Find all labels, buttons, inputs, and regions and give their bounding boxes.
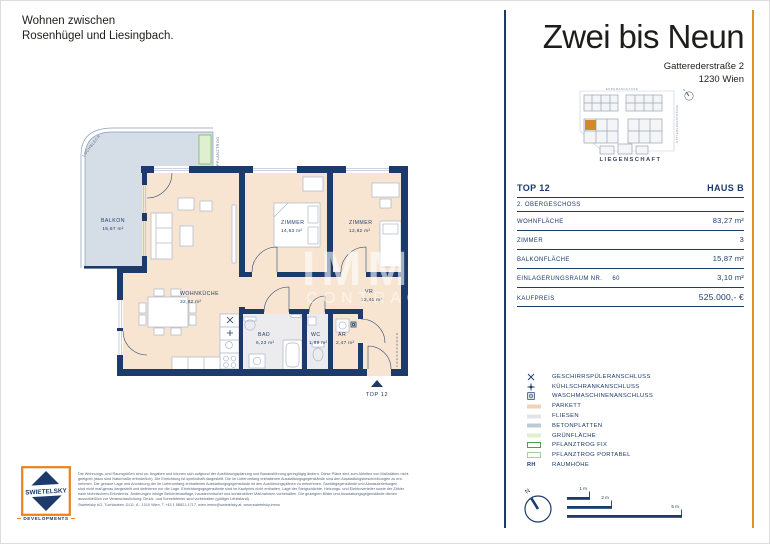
room-label: AR <box>338 332 346 338</box>
pflanztrog-label: PFLANZTROG <box>216 136 220 166</box>
washing-machine-icon <box>249 354 265 368</box>
site-plan: ENDEMANNGASSE GATTEREDERSTRASSE N <box>572 85 702 157</box>
raumhoehe-symbol: RH <box>527 462 541 468</box>
legend-label: PFLANZTROG FIX <box>552 442 607 448</box>
scale-label-2m: 2 m <box>601 495 609 500</box>
betonplatten-swatch <box>527 422 541 430</box>
radiator-icon <box>291 315 301 318</box>
unit-table-title-row: TOP 12 HAUS B <box>517 181 744 198</box>
room-area: 14,63 m² <box>281 228 302 234</box>
company-contact-line: Swietelsky AG, Tuchlauben 11/11, A - 101… <box>78 503 492 507</box>
unit-table: TOP 12 HAUS B 2. OBERGESCHOSS WOHNFLÄCHE… <box>517 181 744 307</box>
legend-label: KÜHLSCHRANKANSCHLUSS <box>552 384 640 390</box>
pflanztrog-fix-swatch <box>527 441 541 449</box>
accent-line <box>752 10 754 528</box>
terrace-door <box>117 331 123 355</box>
legend-item: RH RAUMHÖHE <box>527 460 747 470</box>
legend-label: GRÜNFLÄCHE <box>552 433 596 439</box>
legend-item: PFLANZTROG PORTABEL <box>527 450 747 460</box>
window <box>346 166 389 173</box>
row-value: 3,10 m² <box>717 273 744 282</box>
legend-item: PARKETT <box>527 401 747 411</box>
entrance-label: TOP 12 <box>366 392 388 398</box>
room-area: 12,82 m² <box>349 228 370 234</box>
pflanztrog-portabel-swatch <box>527 451 541 459</box>
scale-and-compass: N 1 m 2 m 5 m <box>522 485 697 530</box>
window <box>117 300 123 328</box>
room-label: BALKON <box>101 218 125 224</box>
building-cluster <box>628 119 662 143</box>
room-area: 2,47 m² <box>336 340 354 346</box>
wardrobe-icon <box>303 177 323 191</box>
house-label: HAUS B <box>707 183 744 193</box>
entrance-arrow-icon <box>371 380 383 387</box>
disclaimer-line: ausschließlich zur Veranschaulichung. Dr… <box>78 497 492 502</box>
site-compass-icon: N <box>683 88 693 100</box>
armchair-icon <box>200 201 212 211</box>
svg-text:N: N <box>525 488 532 495</box>
fliesen-swatch <box>527 412 541 420</box>
tagline-line-2: Rosenhügel und Liesingbach. <box>22 29 174 44</box>
row-label: KAUFPREIS <box>517 296 555 302</box>
address-street: Gatterederstraße 2 <box>512 60 744 73</box>
legend: GESCHIRRSPÜLERANSCHLUSS KÜHLSCHRANKANSCH… <box>527 372 747 470</box>
bathtub-icon <box>283 340 302 370</box>
floor-label: 2. OBERGESCHOSS <box>517 202 581 208</box>
legend-label: BETONPLATTEN <box>552 423 602 429</box>
legend-item: GESCHIRRSPÜLERANSCHLUSS <box>527 372 747 382</box>
parkett-swatch <box>527 402 541 410</box>
row-label: ZIMMER <box>517 238 543 244</box>
gruenflaeche-swatch <box>527 432 541 440</box>
planter-box <box>199 135 211 164</box>
logo-sub-text: DEVELOPMENTS <box>23 516 68 521</box>
legend-label: GESCHIRRSPÜLERANSCHLUSS <box>552 374 651 380</box>
fridge-connection-icon <box>527 383 541 391</box>
sofa-icon <box>151 213 172 259</box>
row-label: EINLAGERUNGSRAUM NR. <box>517 276 602 282</box>
row-value: 525.000,- € <box>699 292 744 302</box>
legend-item: BETONPLATTEN <box>527 421 747 431</box>
desk-icon <box>372 183 399 197</box>
legend-item: WASCHMASCHINENANSCHLUSS <box>527 392 747 402</box>
window <box>253 166 297 173</box>
row-value: 83,27 m² <box>713 216 744 225</box>
room-area: 1,89 m² <box>309 340 327 346</box>
watermark-line-2: CONTRACT <box>306 290 439 307</box>
unit-number: TOP 12 <box>517 183 550 193</box>
scale-label-5m: 5 m <box>671 504 679 509</box>
disclaimer-text: Die Wohnungs- und Raumgrößen sind ca. An… <box>78 472 492 502</box>
scale-bars: 1 m 2 m 5 m <box>567 486 682 518</box>
table-row: WOHNFLÄCHE 83,27 m² <box>517 212 744 231</box>
svg-text:N: N <box>683 88 685 92</box>
table-row: KAUFPREIS 525.000,- € <box>517 288 744 307</box>
window <box>154 166 189 173</box>
building-row <box>600 144 648 154</box>
room-label: WOHNKÜCHE <box>180 290 219 297</box>
room-area: 6,23 m² <box>256 340 274 346</box>
table-row: BALKONFLÄCHE 15,87 m² <box>517 250 744 269</box>
ar-washer-icon <box>336 319 349 332</box>
room-area: 32,82 m² <box>180 299 201 305</box>
dishwasher-connection-icon <box>527 373 541 381</box>
floorplan-page: Wohnen zwischen Rosenhügel und Liesingba… <box>0 0 770 544</box>
tv-board-icon <box>232 205 236 263</box>
legend-label: FLIESEN <box>552 413 579 419</box>
tagline-line-1: Wohnen zwischen <box>22 14 174 29</box>
room-label: ZIMMER <box>349 220 372 226</box>
site-plan-caption: LIEGENSCHAFT <box>517 157 744 163</box>
chair-icon <box>380 199 391 208</box>
row-value: 3 <box>740 235 744 244</box>
row-number: 60 <box>612 276 619 282</box>
legend-item: PFLANZTROG FIX <box>527 441 747 451</box>
street-label-right: GATTEREDERSTRASSE <box>675 104 679 143</box>
panel-divider-line <box>504 10 506 528</box>
floor-row: 2. OBERGESCHOSS <box>517 198 744 212</box>
room-label: ZIMMER <box>281 220 304 226</box>
row-label: WOHNFLÄCHE <box>517 219 564 225</box>
scale-label-1m: 1 m <box>579 486 587 491</box>
row-label: BALKONFLÄCHE <box>517 257 570 263</box>
swietelsky-logo: SWIETELSKY <box>21 466 71 516</box>
tagline: Wohnen zwischen Rosenhügel und Liesingba… <box>22 14 174 43</box>
row-value: 15,87 m² <box>713 254 744 263</box>
sideboard-icon <box>178 198 194 210</box>
legend-item: KÜHLSCHRANKANSCHLUSS <box>527 382 747 392</box>
logo-sub-line: DEVELOPMENTS <box>17 516 75 521</box>
street-label-top: ENDEMANNGASSE <box>606 87 638 91</box>
coffee-table-icon <box>180 226 193 246</box>
building-cluster <box>584 95 618 111</box>
table-row: EINLAGERUNGSRAUM NR. 60 3,10 m² <box>517 269 744 288</box>
floor-plan: LOCHBLECH PFLANZTROG <box>50 95 470 415</box>
table-row: ZIMMER 3 <box>517 231 744 250</box>
legend-item: GRÜNFLÄCHE <box>527 431 747 441</box>
washing-machine-connection-icon <box>527 392 541 400</box>
project-address: Gatterederstraße 2 1230 Wien <box>512 60 744 86</box>
building-cluster <box>626 95 662 111</box>
north-compass-icon: N <box>525 488 551 522</box>
room-label: WC <box>311 332 321 338</box>
entrance-marker: TOP 12 <box>366 380 388 398</box>
brand-wordmark: Zwei bis Neun <box>512 18 744 56</box>
room-area: 15,87 m² <box>102 226 123 232</box>
watermark-line-1: IMMO <box>302 243 457 296</box>
logo-dash-right <box>71 518 75 520</box>
legend-label: RAUMHÖHE <box>552 462 589 468</box>
small-basin-icon <box>308 317 316 325</box>
room-label: BAD <box>258 332 270 338</box>
legend-label: WASCHMASCHINENANSCHLUSS <box>552 393 653 399</box>
legend-item: FLIESEN <box>527 411 747 421</box>
highlighted-unit <box>585 120 596 130</box>
logo-dash-left <box>17 518 21 520</box>
legend-label: PARKETT <box>552 403 581 409</box>
watermark: IMMO CONTRACT <box>302 243 457 307</box>
legend-label: PFLANZTROG PORTABEL <box>552 452 631 458</box>
